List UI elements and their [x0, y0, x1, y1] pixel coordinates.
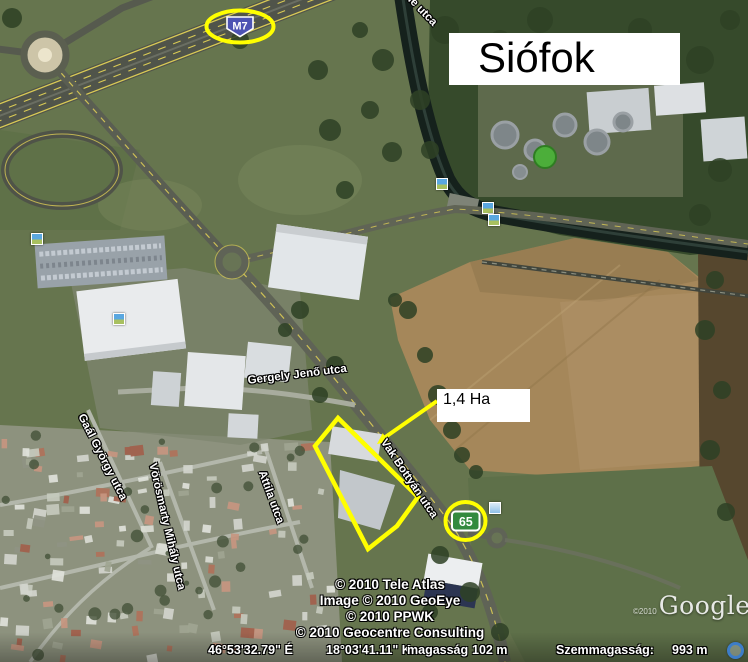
route65-shield-label: 65	[459, 515, 473, 529]
copyright-line: © 2010 Geocentre Consulting	[250, 625, 530, 641]
copyright-line: © 2010 PPWK	[250, 609, 530, 625]
area-label: 1,4 Ha	[443, 391, 490, 408]
status-eye-altitude-label: Szemmagasság:	[556, 643, 654, 657]
status-longitude: 18°03'41.11" K	[326, 643, 411, 657]
area-label-box: 1,4 Ha	[437, 389, 530, 422]
map-canvas[interactable]: M7 65 Siófok 1,4 Ha Gergely Jenő utca Va…	[0, 0, 748, 662]
route65-shield: 65	[452, 512, 480, 531]
photo-marker-icon[interactable]	[482, 202, 494, 214]
copyright-line: © 2010 Tele Atlas	[250, 577, 530, 593]
photo-marker-icon[interactable]	[31, 233, 43, 245]
city-title: Siófok	[478, 34, 595, 81]
annotation-layer: M7 65	[0, 0, 748, 662]
m7-shield-label: M7	[232, 21, 247, 33]
copyright-block: © 2010 Tele Atlas Image © 2010 GeoEye © …	[250, 577, 530, 641]
google-watermark-year: ©2010	[633, 607, 657, 616]
navigation-ring-icon[interactable]	[727, 642, 744, 659]
google-logo: Google	[659, 591, 748, 620]
m7-shield: M7	[227, 17, 253, 37]
photo-marker-icon[interactable]	[113, 313, 125, 325]
site-outline-polygon	[315, 418, 418, 549]
status-eye-altitude-value: 993 m	[672, 643, 707, 657]
status-latitude: 46°53'32.79" É	[208, 643, 293, 657]
google-watermark: ©2010 Google	[633, 591, 748, 620]
city-title-box: Siófok	[449, 33, 680, 85]
status-elevation-value: 102 m	[472, 643, 507, 657]
photo-marker-icon[interactable]	[489, 502, 501, 514]
status-elevation-label: magasság	[407, 643, 468, 657]
photo-marker-icon[interactable]	[488, 214, 500, 226]
area-arrow-shaft	[384, 401, 437, 438]
copyright-line: Image © 2010 GeoEye	[250, 593, 530, 609]
photo-marker-icon[interactable]	[436, 178, 448, 190]
